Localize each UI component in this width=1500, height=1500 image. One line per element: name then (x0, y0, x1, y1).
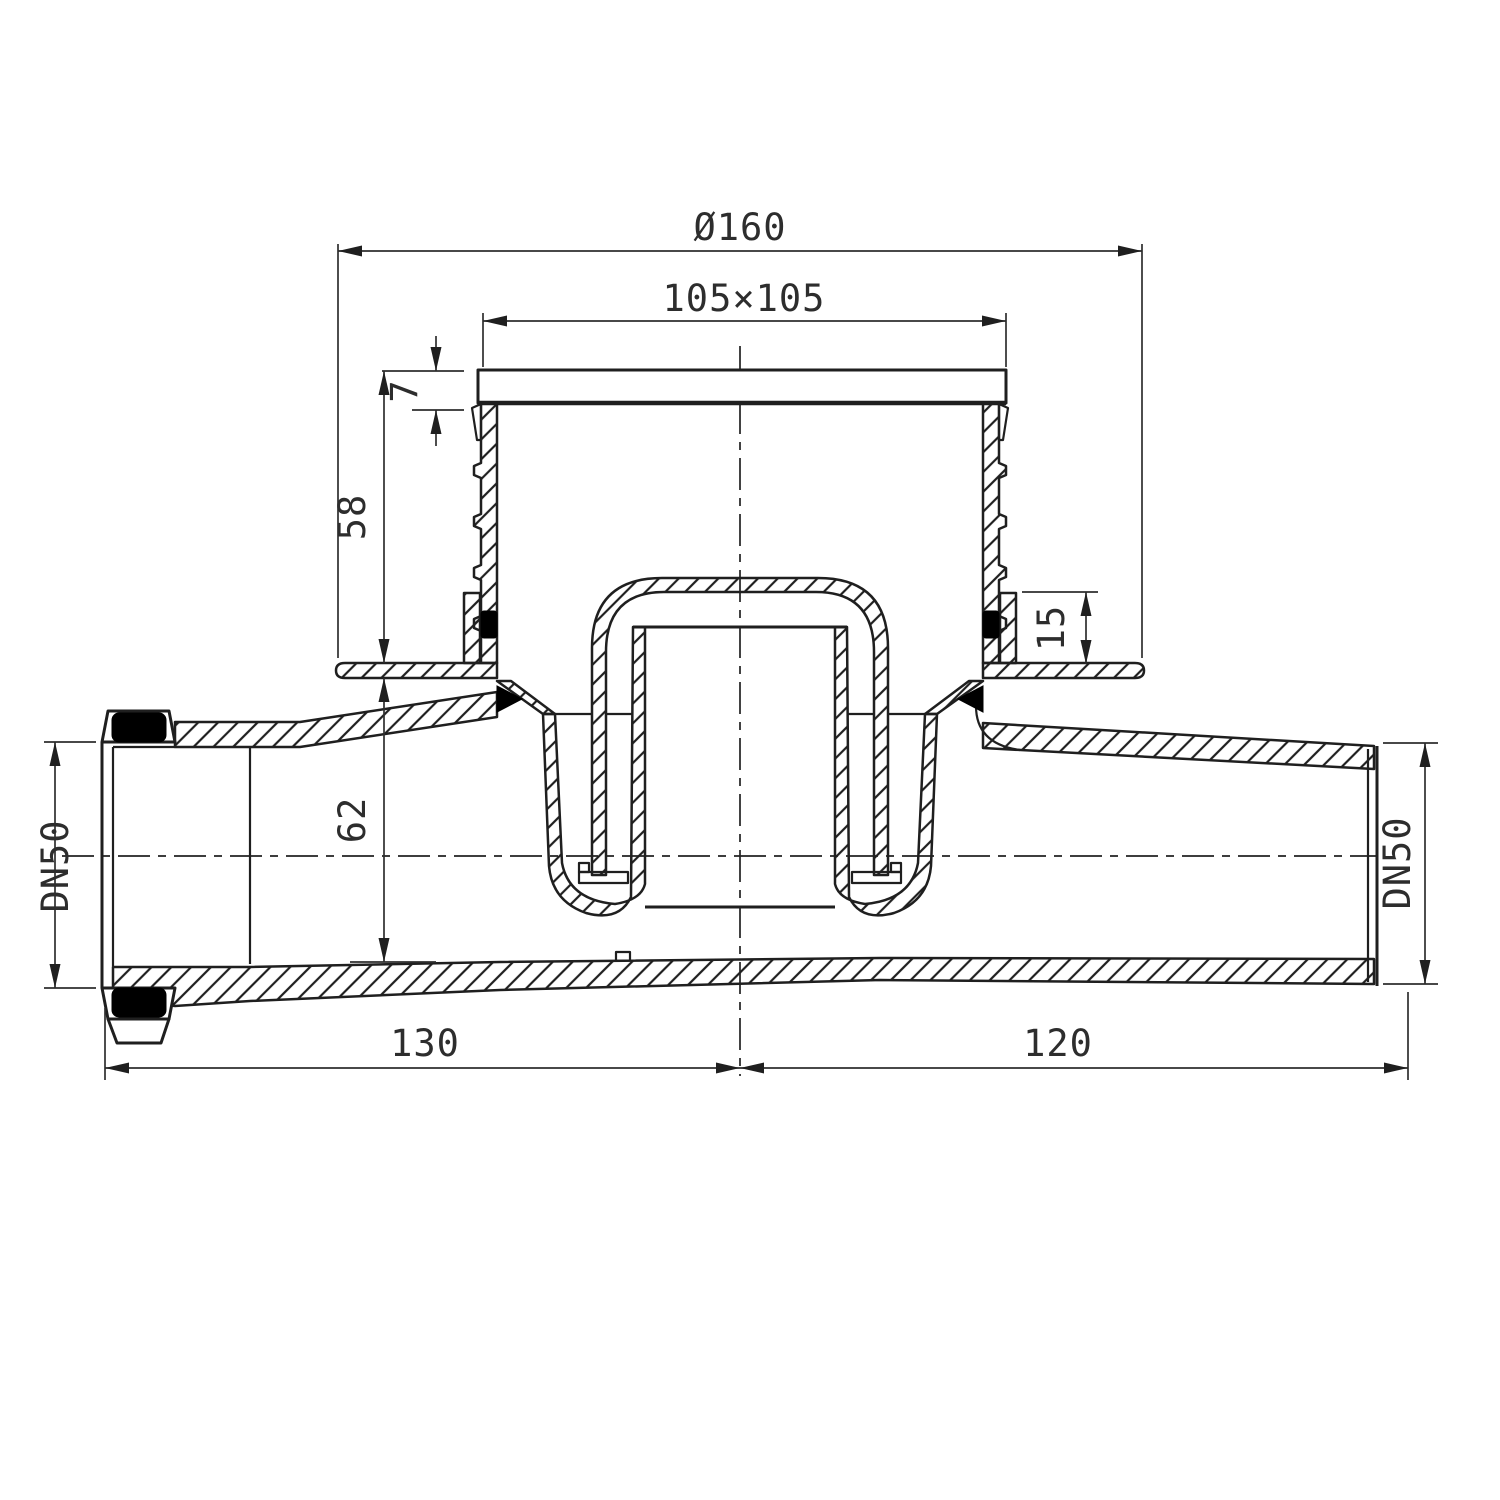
outlet-pipe (976, 706, 1377, 986)
lid-skirt-left (472, 404, 481, 440)
lid-plate (478, 370, 1006, 403)
dim-label-top-diameter: Ø160 (693, 206, 786, 249)
clamp-bracket-right (1000, 593, 1016, 663)
dim-label-outlet-pipe: DN50 (1376, 816, 1419, 909)
dim-label-outlet-length: 120 (1023, 1022, 1093, 1065)
dim-label-clamp-height: 15 (1030, 605, 1073, 652)
dim-label-body-depth: 62 (331, 797, 374, 844)
dim-label-inlet-length: 130 (390, 1022, 460, 1065)
lid-skirt-right (999, 404, 1008, 440)
technical-drawing: Ø160 105×105 7 58 62 15 DN50 DN50 (0, 0, 1500, 1500)
seal-housing-foot (108, 1019, 169, 1043)
bottom-wall (113, 958, 1374, 1006)
flange-right (983, 663, 1144, 678)
dim-label-riser-height: 58 (331, 494, 374, 541)
drawing-sheet: Ø160 105×105 7 58 62 15 DN50 DN50 (0, 0, 1500, 1500)
dimension-lid-thickness: 7 (382, 336, 464, 446)
dimension-riser-height: 58 (331, 371, 384, 663)
dimension-inlet-pipe: DN50 (34, 742, 96, 988)
dim-label-lid-thickness: 7 (383, 379, 426, 402)
flange-left (336, 663, 497, 678)
clamp-bracket-left (464, 593, 480, 663)
dimension-grate-size: 105×105 (483, 277, 1006, 367)
clamp-seal-right (983, 611, 999, 638)
body-bottom (113, 952, 1374, 1006)
clamp-seal-left (481, 611, 497, 638)
dimension-inlet-length: 130 (105, 1008, 740, 1080)
dim-label-grate-size: 105×105 (663, 277, 826, 320)
inlet-top-wall (175, 692, 497, 747)
bell-foot-right-stub (891, 863, 901, 872)
rubber-seal-top (112, 713, 166, 742)
dimension-outlet-length: 120 (740, 992, 1408, 1080)
outlet-top-wall (983, 723, 1374, 769)
bell-foot-left-stub (579, 863, 589, 872)
dimension-outlet-pipe: DN50 (1376, 743, 1438, 984)
dim-label-inlet-pipe: DN50 (34, 819, 77, 912)
dimension-clamp-height: 15 (1022, 592, 1098, 664)
rubber-seal-bottom (112, 988, 166, 1017)
